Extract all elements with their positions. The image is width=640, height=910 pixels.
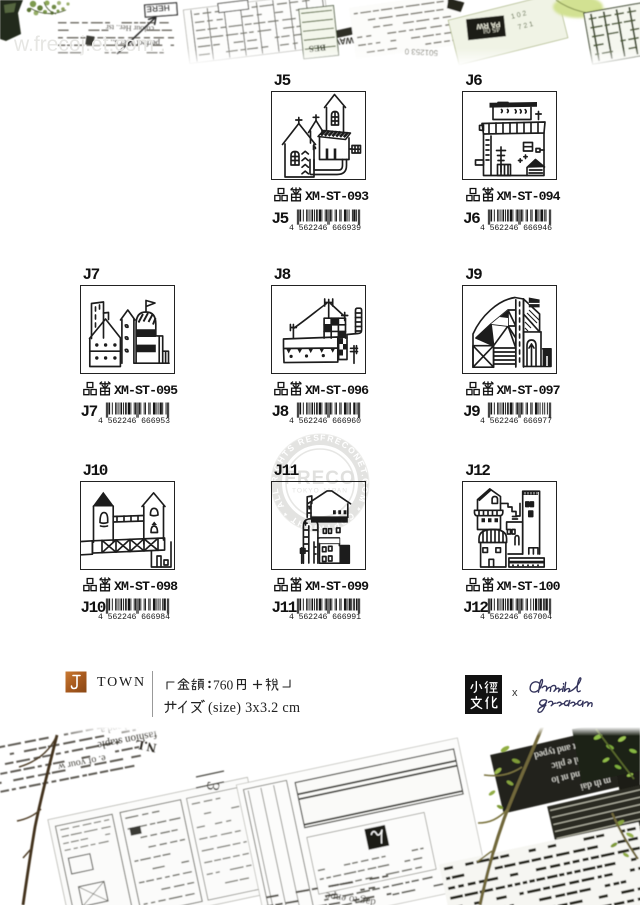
svg-text:4 562246 666960: 4 562246 666960 xyxy=(289,417,361,424)
svg-text:4 562246 666991: 4 562246 666991 xyxy=(289,613,361,620)
svg-text:HERE: HERE xyxy=(146,3,171,15)
svg-text:e. of your w: e. of your w xyxy=(56,752,106,772)
svg-text:colour Her.. tsr: colour Her.. tsr xyxy=(106,23,155,34)
svg-text:4 562246 666953: 4 562246 666953 xyxy=(98,417,170,424)
svg-text:FRECO: FRECO xyxy=(284,468,356,489)
svg-text:4 562246 666939: 4 562246 666939 xyxy=(289,224,361,231)
svg-text:4 562246 666984: 4 562246 666984 xyxy=(98,613,170,620)
svg-text:4 562246 666977: 4 562246 666977 xyxy=(480,417,552,424)
svg-text:TOKYO JAPAN: TOKYO JAPAN xyxy=(292,488,348,495)
svg-text:4 562246 666946: 4 562246 666946 xyxy=(480,224,552,231)
svg-text:760: 760 xyxy=(213,678,234,693)
svg-text:4 562246 667004: 4 562246 667004 xyxy=(480,613,552,620)
svg-text:(size) 3x3.2 cm: (size) 3x3.2 cm xyxy=(208,700,300,715)
